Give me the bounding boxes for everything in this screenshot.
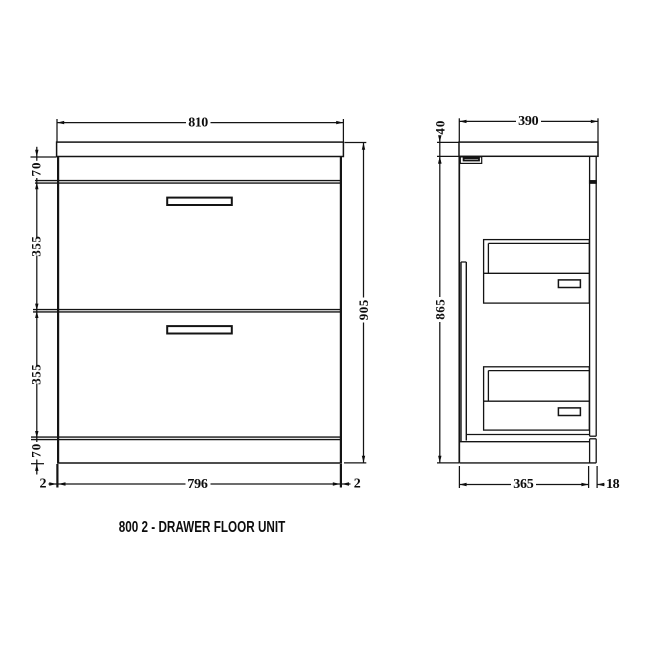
svg-text:355: 355 (28, 364, 43, 385)
svg-text:355: 355 (28, 236, 43, 257)
svg-text:2: 2 (354, 476, 361, 491)
svg-text:796: 796 (187, 477, 208, 492)
svg-text:70: 70 (28, 444, 43, 458)
svg-text:810: 810 (188, 116, 208, 131)
svg-text:40: 40 (433, 121, 448, 135)
svg-text:800 2 - DRAWER FLOOR UNIT: 800 2 - DRAWER FLOOR UNIT (119, 519, 286, 536)
svg-text:70: 70 (28, 163, 43, 177)
svg-text:905: 905 (356, 299, 371, 320)
svg-text:2: 2 (40, 476, 47, 491)
svg-text:865: 865 (432, 299, 447, 320)
svg-text:18: 18 (606, 477, 620, 492)
svg-text:365: 365 (513, 477, 534, 492)
svg-text:390: 390 (518, 114, 539, 129)
